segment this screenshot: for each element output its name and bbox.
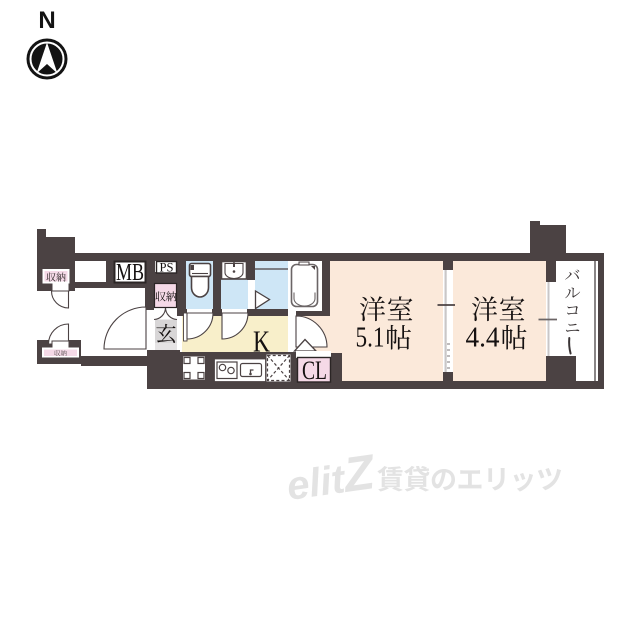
svg-text:K: K — [253, 324, 270, 359]
svg-text:5.1: 5.1 — [356, 322, 385, 354]
svg-text:CL: CL — [302, 356, 327, 385]
svg-text:PS: PS — [160, 260, 174, 275]
svg-text:MB: MB — [116, 260, 144, 286]
svg-text:N: N — [38, 7, 55, 34]
svg-text:4.4: 4.4 — [466, 322, 500, 354]
